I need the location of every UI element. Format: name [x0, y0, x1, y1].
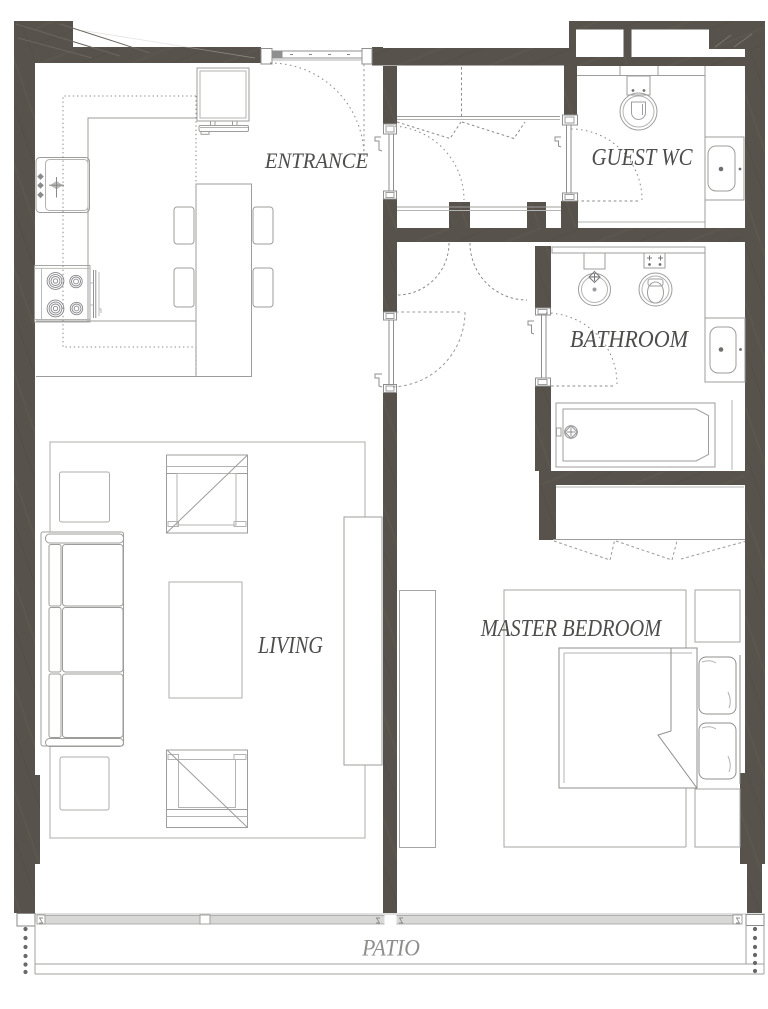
- svg-text:BATHROOM: BATHROOM: [570, 326, 689, 353]
- svg-text:GUEST WC: GUEST WC: [591, 144, 693, 171]
- svg-text:MASTER BEDROOM: MASTER BEDROOM: [480, 615, 663, 642]
- svg-text:ENTRANCE: ENTRANCE: [264, 148, 368, 173]
- svg-text:PATIO: PATIO: [361, 935, 420, 961]
- svg-text:LIVING: LIVING: [257, 631, 323, 658]
